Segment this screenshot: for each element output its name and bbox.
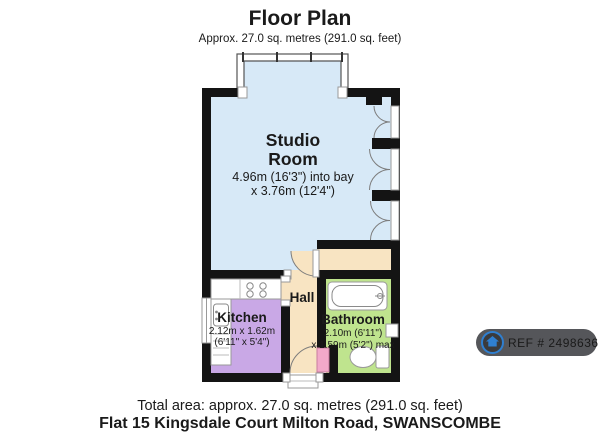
bay-window [237, 52, 348, 97]
total-area-text: Total area: approx. 27.0 sq. metres (291… [137, 398, 463, 414]
bathroom-label: Bathroom 2.10m (6'11") x 1.59m (5'2") ma… [311, 312, 394, 351]
kitchen-opening-jamb-top [281, 276, 290, 282]
ref-badge-label: REF # 2498636 [508, 336, 599, 350]
bay-jamb-left [238, 87, 247, 98]
studio-name-line2: Room [268, 149, 318, 169]
address-text: Flat 15 Kingsdale Court Milton Road, SWA… [99, 415, 501, 432]
bathroom-name: Bathroom [321, 312, 385, 327]
kitchen-counter [211, 279, 281, 299]
bathroom-wall-unit [386, 324, 398, 337]
floor-plan-drawing: Floor Plan Approx. 27.0 sq. metres (291.… [0, 0, 601, 437]
bathroom-door [317, 348, 329, 372]
page-title: Floor Plan [249, 7, 352, 30]
hall-nook-area [317, 249, 391, 270]
kitchen-label: Kitchen 2.12m x 1.62m (6'11" x 5'4") [209, 310, 275, 348]
studio-dimensions-line2: x 3.76m (12'4") [251, 184, 335, 198]
bathtub-icon [328, 282, 387, 310]
kitchen-dimensions-line1: 2.12m x 1.62m [209, 326, 275, 337]
studio-dimensions-line1: 4.96m (16'3") into bay [232, 170, 354, 184]
bathroom-dimensions-line1: 2.10m (6'11") [324, 328, 383, 339]
kitchen-dimensions-line2: (6'11" x 5'4") [214, 337, 269, 348]
bay-jamb-right [338, 87, 347, 98]
kitchen-name: Kitchen [217, 310, 267, 325]
page-subtitle: Approx. 27.0 sq. metres (291.0 sq. feet) [199, 33, 402, 45]
floor-plan-page: Floor Plan Approx. 27.0 sq. metres (291.… [0, 0, 601, 437]
hall-label: Hall [290, 290, 315, 305]
studio-name-line1: Studio [266, 130, 320, 150]
bathroom-dimensions-line2: x 1.59m (5'2") max [311, 340, 394, 351]
ref-badge: REF # 2498636 [476, 329, 599, 356]
bay-window-glass [244, 61, 341, 97]
